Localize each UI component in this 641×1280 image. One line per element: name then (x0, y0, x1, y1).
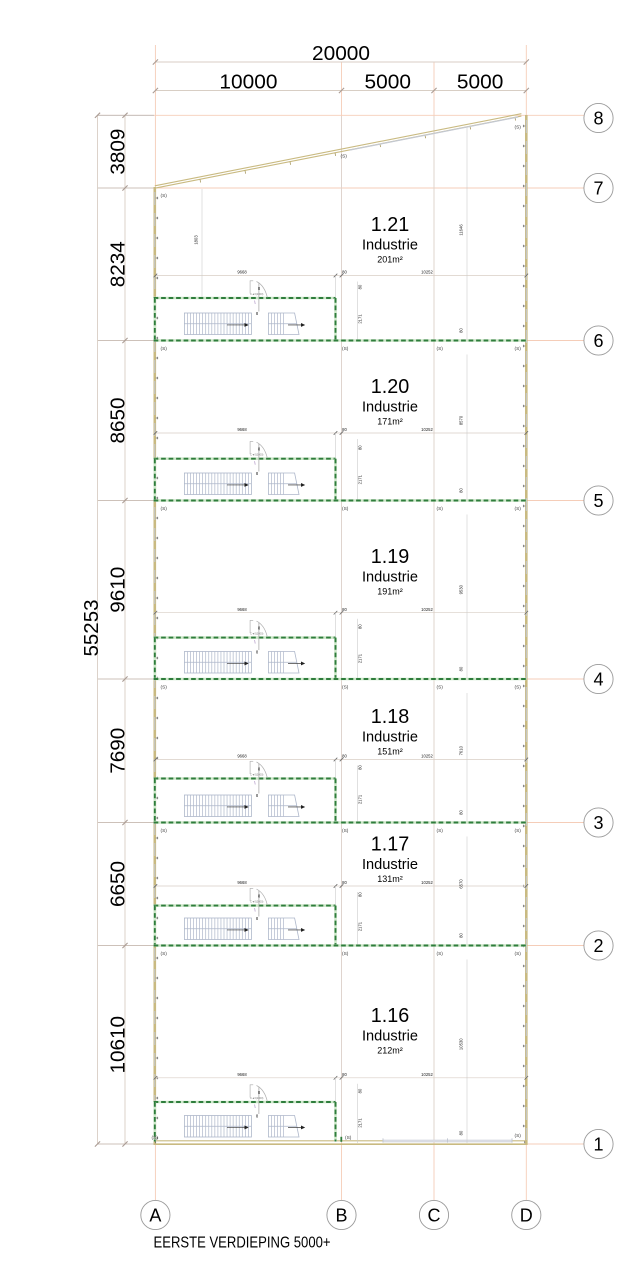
svg-text:(S): (S) (437, 951, 444, 957)
svg-text:8: 8 (593, 109, 603, 129)
svg-text:C◄0(2000): C◄0(2000) (250, 292, 264, 296)
svg-text:C◄0(2000): C◄0(2000) (250, 453, 264, 457)
svg-text:(S): (S) (152, 1135, 159, 1141)
svg-text:Industrie: Industrie (362, 570, 418, 586)
svg-text:5000: 5000 (457, 70, 503, 93)
svg-text:7: 7 (593, 179, 603, 199)
svg-text:9668: 9668 (237, 427, 247, 432)
svg-text:(S): (S) (161, 685, 168, 691)
svg-text:(S): (S) (515, 506, 522, 512)
svg-text:80: 80 (459, 810, 464, 815)
svg-text:C◄0(2000): C◄0(2000) (250, 773, 264, 777)
svg-text:10610: 10610 (107, 1016, 130, 1074)
svg-text:(S): (S) (161, 506, 168, 512)
svg-text:191m²: 191m² (377, 587, 403, 597)
svg-text:2171: 2171 (358, 921, 363, 931)
svg-text:(S): (S) (515, 1133, 522, 1139)
svg-text:B: B (335, 1206, 347, 1226)
svg-text:(S): (S) (515, 346, 522, 352)
svg-text:(S): (S) (515, 828, 522, 834)
svg-text:10252: 10252 (421, 607, 433, 612)
svg-text:9668: 9668 (237, 1072, 247, 1077)
svg-text:80: 80 (358, 284, 363, 289)
svg-text:(S): (S) (345, 1135, 352, 1141)
svg-text:55253: 55253 (80, 600, 103, 657)
svg-text:(S): (S) (161, 193, 168, 199)
svg-text:80: 80 (358, 765, 363, 770)
svg-text:1.20: 1.20 (371, 376, 410, 398)
svg-text:5: 5 (593, 491, 603, 511)
svg-text:D: D (520, 1206, 533, 1226)
svg-text:(S): (S) (515, 125, 522, 131)
svg-text:9668: 9668 (237, 607, 247, 612)
svg-text:10252: 10252 (421, 270, 433, 275)
svg-text:A: A (149, 1206, 161, 1226)
svg-text:1.16: 1.16 (371, 1005, 410, 1027)
svg-text:(S): (S) (342, 506, 349, 512)
svg-text:1803: 1803 (194, 235, 199, 245)
svg-text:7610: 7610 (459, 745, 464, 755)
svg-text:(S): (S) (437, 828, 444, 834)
svg-text:2171: 2171 (358, 474, 363, 484)
svg-text:201m²: 201m² (377, 255, 403, 265)
svg-text:9668: 9668 (237, 754, 247, 759)
svg-text:(S): (S) (342, 346, 349, 352)
svg-text:80: 80 (342, 607, 347, 612)
svg-text:(S): (S) (341, 154, 348, 160)
svg-text:10252: 10252 (421, 880, 433, 885)
svg-text:80: 80 (342, 1072, 347, 1077)
svg-text:4: 4 (593, 670, 603, 690)
svg-text:80: 80 (342, 880, 347, 885)
svg-text:3: 3 (593, 813, 603, 833)
svg-text:C◄0(2000): C◄0(2000) (250, 1096, 264, 1100)
svg-text:3809: 3809 (107, 129, 130, 175)
svg-text:(S): (S) (161, 346, 168, 352)
svg-text:(S): (S) (342, 685, 349, 691)
svg-text:80: 80 (459, 1130, 464, 1135)
svg-text:80: 80 (358, 624, 363, 629)
svg-text:80: 80 (358, 892, 363, 897)
svg-text:2171: 2171 (358, 1118, 363, 1128)
svg-text:1.17: 1.17 (371, 834, 410, 856)
svg-text:10252: 10252 (421, 1072, 433, 1077)
svg-text:EERSTE VERDIEPING 5000+: EERSTE VERDIEPING 5000+ (154, 1235, 331, 1252)
svg-text:(S): (S) (437, 506, 444, 512)
svg-text:80: 80 (358, 445, 363, 450)
svg-text:1.19: 1.19 (371, 546, 410, 568)
svg-text:1: 1 (593, 1135, 603, 1155)
svg-text:7690: 7690 (107, 728, 130, 774)
svg-text:6570: 6570 (459, 879, 464, 889)
svg-text:20000: 20000 (312, 42, 370, 65)
svg-text:80: 80 (459, 666, 464, 671)
svg-text:11646: 11646 (459, 224, 464, 236)
svg-text:1.18: 1.18 (371, 706, 410, 728)
svg-text:10000: 10000 (219, 70, 277, 93)
svg-text:Industrie: Industrie (362, 238, 418, 254)
svg-text:10252: 10252 (421, 754, 433, 759)
svg-text:Industrie: Industrie (362, 857, 418, 873)
svg-text:80: 80 (459, 933, 464, 938)
svg-text:8650: 8650 (107, 398, 130, 444)
svg-text:(S): (S) (515, 685, 522, 691)
svg-text:(S): (S) (161, 828, 168, 834)
svg-text:1.21: 1.21 (371, 214, 410, 236)
svg-text:80: 80 (459, 488, 464, 493)
svg-text:9668: 9668 (237, 270, 247, 275)
svg-text:(S): (S) (437, 685, 444, 691)
svg-text:10530: 10530 (459, 1038, 464, 1050)
svg-text:2171: 2171 (358, 653, 363, 663)
svg-text:80: 80 (459, 328, 464, 333)
svg-text:171m²: 171m² (377, 417, 403, 427)
svg-text:2: 2 (593, 936, 603, 956)
svg-text:9668: 9668 (237, 880, 247, 885)
svg-text:C: C (428, 1206, 441, 1226)
svg-text:80: 80 (358, 1088, 363, 1093)
svg-text:10252: 10252 (421, 427, 433, 432)
svg-text:(S): (S) (342, 828, 349, 834)
svg-text:131m²: 131m² (377, 874, 403, 884)
svg-text:Industrie: Industrie (362, 400, 418, 416)
svg-text:C◄0(2000): C◄0(2000) (250, 632, 264, 636)
svg-text:(S): (S) (161, 951, 168, 957)
svg-text:(S): (S) (437, 346, 444, 352)
svg-text:151m²: 151m² (377, 747, 403, 757)
svg-text:9610: 9610 (107, 567, 130, 613)
svg-text:80: 80 (342, 427, 347, 432)
svg-text:2171: 2171 (358, 794, 363, 804)
svg-text:9530: 9530 (459, 584, 464, 594)
svg-text:C◄0(2000): C◄0(2000) (250, 900, 264, 904)
svg-text:(S): (S) (342, 951, 349, 957)
svg-text:80: 80 (342, 270, 347, 275)
svg-text:8234: 8234 (107, 241, 130, 287)
svg-text:(S): (S) (515, 951, 522, 957)
svg-text:6: 6 (593, 331, 603, 351)
svg-text:Industrie: Industrie (362, 730, 418, 746)
svg-text:2171: 2171 (358, 314, 363, 324)
svg-text:Industrie: Industrie (362, 1029, 418, 1045)
svg-text:5000: 5000 (365, 70, 411, 93)
svg-text:6650: 6650 (107, 861, 130, 907)
svg-text:8570: 8570 (459, 415, 464, 425)
svg-text:212m²: 212m² (377, 1046, 403, 1056)
svg-text:80: 80 (342, 754, 347, 759)
